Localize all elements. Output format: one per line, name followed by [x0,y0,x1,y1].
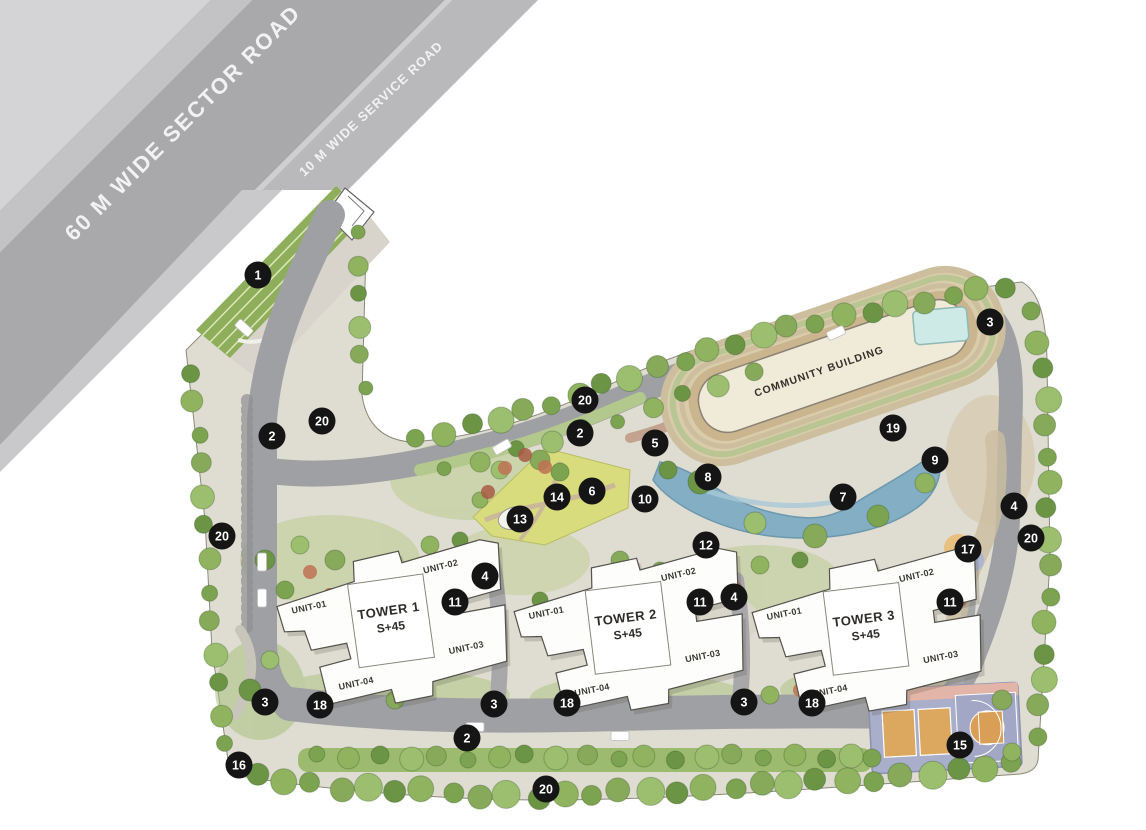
tree [488,407,514,433]
plan-marker-14: 14 [544,484,571,511]
tree [199,611,219,631]
tree [426,746,446,766]
plan-marker-4: 4 [472,563,499,590]
tree [1032,610,1056,634]
tree [470,452,490,472]
plan-marker-2: 2 [567,420,594,447]
tree [261,651,279,669]
tree [1040,554,1062,576]
plan-marker-number: 20 [539,783,553,797]
tree [913,292,935,314]
tree [354,773,382,801]
tree [291,536,309,554]
tree [489,746,511,768]
tree [637,777,665,805]
tree [463,414,483,434]
tree [818,750,836,768]
tree [803,524,827,548]
tree [408,776,434,802]
plan-marker-number: 15 [953,739,967,753]
tree [1025,331,1049,355]
plan-marker-number: 14 [550,491,564,505]
tree [745,363,763,381]
plan-marker-number: 9 [932,454,939,468]
tree [192,427,208,443]
tree [551,463,569,481]
tree [1036,498,1056,518]
plan-marker-number: 18 [560,697,574,711]
tree [406,429,424,447]
autumn-shrub [481,485,495,499]
tree [421,536,439,554]
tree [666,782,688,804]
plan-marker-number: 7 [840,491,847,505]
plan-marker-number: 11 [943,596,956,610]
plan-marker-3: 3 [977,309,1004,336]
autumn-shrub [538,460,552,474]
autumn-shrub [498,461,512,475]
tree [690,774,716,800]
plan-marker-number: 20 [578,394,592,408]
tree [444,783,464,803]
tree [1029,728,1047,746]
plan-marker-20: 20 [533,776,560,803]
tree [775,315,797,337]
tree [761,686,779,704]
plan-marker-20: 20 [1018,525,1045,552]
tree [832,303,856,327]
tree [835,768,861,794]
plan-marker-2: 2 [259,423,286,450]
tree [1027,694,1049,716]
tree [210,673,228,691]
plan-marker-19: 19 [880,415,907,442]
tree [492,780,520,808]
tree [992,690,1012,710]
plan-marker-11: 11 [687,589,714,616]
tree [384,780,406,802]
tree [633,745,655,767]
plan-marker-number: 20 [1024,532,1038,546]
tree [726,779,746,799]
plan-marker-number: 6 [589,485,596,499]
autumn-shrub [303,565,317,579]
plan-marker-number: 1 [255,269,262,283]
tree [337,747,359,769]
tree [666,751,684,769]
plan-marker-number: 11 [448,596,461,610]
tree [863,749,881,767]
plan-marker-number: 10 [638,493,652,507]
tree [276,581,294,599]
plan-marker-7: 7 [830,484,857,511]
tree [644,398,664,418]
tree [181,390,203,412]
tree [512,398,534,420]
plan-marker-8: 8 [695,464,722,491]
plan-marker-15: 15 [947,732,974,759]
plan-marker-number: 4 [731,591,738,605]
plan-marker-number: 2 [577,427,584,441]
tree [204,643,228,667]
tree [1003,743,1021,761]
plan-marker-number: 3 [987,316,994,330]
tree [191,485,215,509]
tree [300,772,320,792]
tree [948,758,970,780]
tree [349,316,371,338]
tree [804,768,826,790]
tree [784,744,806,766]
tree [659,461,677,479]
tree [541,431,563,453]
plan-marker-5: 5 [642,430,669,457]
plan-marker-17: 17 [955,536,982,563]
tree [1033,358,1053,378]
plan-marker-6: 6 [579,478,606,505]
plan-marker-number: 4 [1011,500,1018,514]
tree [437,462,451,476]
tree [351,225,365,239]
tree [647,356,669,378]
tree [919,761,947,789]
plan-marker-number: 19 [886,422,900,436]
tree [371,746,389,764]
tree [211,705,233,727]
tree [792,552,808,568]
tree [1031,667,1057,693]
plan-marker-number: 16 [232,759,246,773]
plan-marker-number: 12 [699,539,713,553]
tree [432,423,456,447]
tree [888,763,912,787]
tree [359,381,373,395]
plan-marker-1: 1 [245,262,272,289]
tree [542,397,560,415]
tree [863,303,883,323]
tree [616,366,642,392]
plan-marker-number: 18 [313,699,327,713]
plan-marker-number: 20 [215,530,229,544]
tree [744,512,766,534]
tree [707,375,729,397]
tree [695,338,719,362]
plan-marker-11: 11 [937,589,964,616]
tree [864,772,884,792]
plan-marker-18: 18 [554,690,581,717]
site-plan-art: 60 M WIDE SECTOR ROAD 10 M WIDE SERVICE … [0,0,1146,830]
plan-marker-number: 13 [513,513,527,527]
plan-marker-11: 11 [442,589,469,616]
tree [611,415,625,429]
plan-marker-4: 4 [721,584,748,611]
plan-marker-3: 3 [481,691,508,718]
tree [606,778,630,802]
tree [755,750,771,766]
tree [677,353,695,371]
autumn-shrub [518,448,532,462]
plan-marker-20: 20 [572,387,599,414]
plan-marker-2: 2 [454,725,481,752]
tree [191,453,211,473]
plan-marker-3: 3 [731,689,758,716]
tree [722,744,742,764]
plan-marker-number: 3 [741,696,748,710]
tree [806,315,824,333]
tree [350,345,368,363]
tree [582,785,602,805]
plan-marker-number: 3 [262,696,269,710]
tree [867,505,889,527]
plan-marker-3: 3 [252,689,279,716]
tree [309,746,325,762]
plan-marker-number: 11 [693,596,706,610]
plan-marker-number: 17 [961,543,975,557]
plan-marker-13: 13 [507,506,534,533]
plan-marker-18: 18 [307,692,334,719]
plan-marker-number: 4 [482,570,489,584]
tree [199,548,221,570]
tree [750,771,774,795]
tree [1022,302,1040,320]
plan-marker-10: 10 [632,486,659,513]
plan-marker-number: 5 [652,437,659,451]
plan-marker-9: 9 [922,447,949,474]
tree [964,276,988,300]
tree [217,735,233,751]
tree [468,785,492,809]
plan-marker-18: 18 [799,690,826,717]
tree [271,769,297,795]
plan-marker-16: 16 [226,752,253,779]
court-1 [882,710,916,758]
tree [611,751,627,767]
tree [515,745,533,763]
tree [839,744,863,768]
plan-marker-number: 8 [705,471,712,485]
tree [182,365,200,383]
site-plan: 60 M WIDE SECTOR ROAD 10 M WIDE SERVICE … [0,0,1146,830]
tree [1036,387,1062,413]
tree [774,771,802,799]
parked-car [258,589,267,607]
tree [1042,588,1060,606]
plan-marker-number: 3 [491,698,498,712]
tree [882,291,908,317]
tree [348,256,368,276]
plan-marker-20: 20 [209,523,236,550]
tree [325,550,345,570]
tree [1038,448,1056,466]
plan-marker-number: 18 [805,697,819,711]
tree [945,287,963,305]
tree [544,746,568,770]
parked-car [258,553,267,571]
plan-marker-number: 20 [315,415,329,429]
plan-marker-number: 2 [269,430,276,444]
tree [1038,470,1062,494]
tree [995,278,1015,298]
tree [578,745,598,765]
parked-car [611,732,629,741]
tree [351,285,367,301]
tree [674,385,690,401]
tree [1034,414,1056,436]
plan-marker-number: 2 [464,732,471,746]
tree [695,745,719,769]
tree [460,752,476,768]
tree [725,335,745,355]
tree [972,756,998,782]
tree [400,747,424,771]
tree [202,585,218,601]
plan-marker-12: 12 [693,532,720,559]
tree [751,322,777,348]
tree [1034,645,1054,665]
tree [751,556,769,574]
plan-marker-20: 20 [309,408,336,435]
tree [330,778,354,802]
plan-marker-4: 4 [1001,493,1028,520]
tree [915,473,935,493]
